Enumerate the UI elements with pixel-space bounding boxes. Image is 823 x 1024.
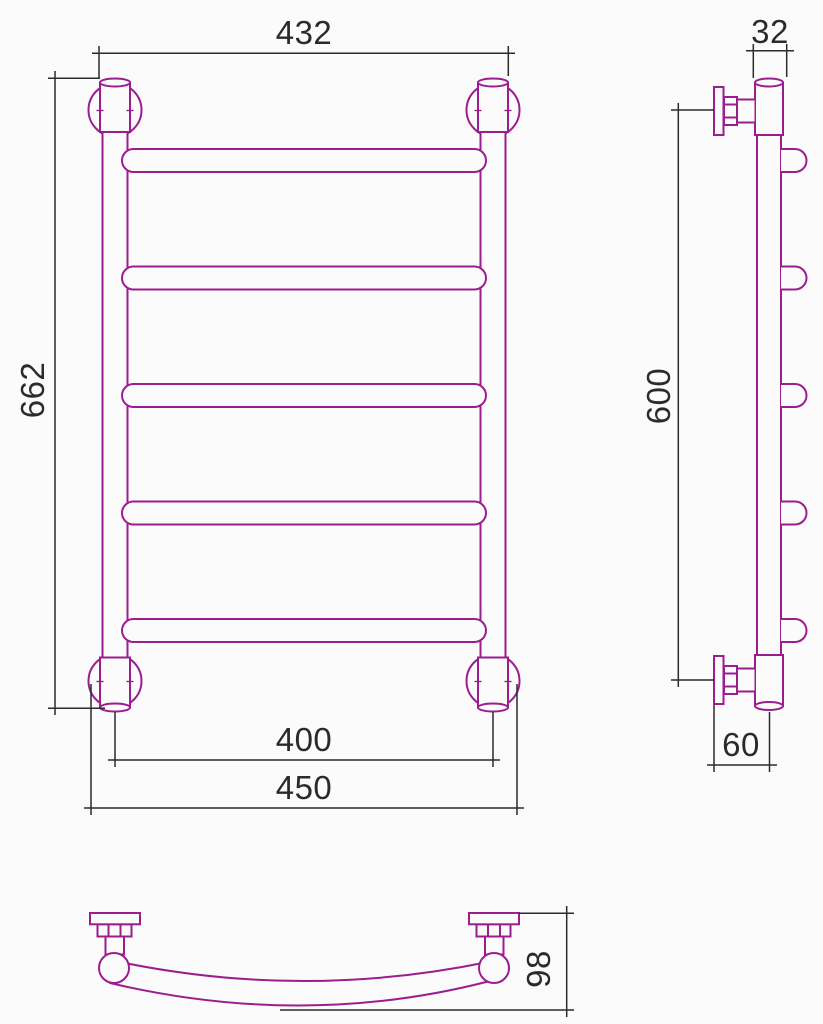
tube-bottom-cap — [478, 704, 508, 712]
rung-4 — [122, 502, 486, 525]
bracket-nut — [724, 666, 737, 694]
bracket-flange — [714, 87, 724, 135]
rung-3 — [122, 384, 486, 407]
dim-98-label: 98 — [520, 950, 557, 988]
dim-662: 662 — [14, 71, 105, 715]
tube-bottom-cap — [100, 704, 130, 712]
plan-stem-left — [106, 937, 125, 955]
tube-bottom-cap — [755, 702, 783, 710]
plan-tube-left — [99, 953, 129, 983]
rung-2 — [122, 267, 486, 290]
rung-bump-2 — [781, 267, 807, 290]
plan-stem-right — [485, 937, 504, 955]
side-bracket-bottom — [714, 656, 755, 704]
dim-32: 32 — [746, 13, 794, 78]
dim-60: 60 — [707, 705, 777, 772]
dim-432: 432 — [92, 14, 515, 79]
rung-1 — [122, 149, 486, 172]
plan-curved-rung — [110, 962, 490, 1006]
tube-top-cap — [478, 79, 508, 87]
towel-rail-drawing: 432 662 400 450 32 — [0, 0, 823, 1024]
plan-nut-right — [477, 924, 511, 936]
bracket-nut — [724, 97, 737, 125]
side-tube — [755, 79, 783, 711]
dim-450-label: 450 — [276, 769, 333, 806]
dim-32-label: 32 — [751, 13, 789, 50]
rung-bump-1 — [781, 149, 807, 172]
dim-432-label: 432 — [276, 14, 333, 51]
rung-bump-5 — [781, 619, 807, 642]
dim-400: 400 — [108, 712, 500, 767]
dim-662-label: 662 — [14, 362, 51, 419]
technical-drawing-canvas: 432 662 400 450 32 — [0, 0, 823, 1024]
front-rungs — [122, 149, 486, 642]
tube-top-cap — [755, 79, 783, 87]
side-view — [714, 79, 807, 711]
plan-flange-left — [90, 913, 140, 924]
dim-60-label: 60 — [722, 726, 760, 763]
plan-tube-right — [479, 953, 509, 983]
plan-view — [90, 913, 519, 1006]
side-bracket-top — [714, 87, 755, 135]
plan-nut-left — [98, 924, 132, 936]
dim-600: 600 — [640, 103, 714, 687]
dim-600-label: 600 — [640, 368, 677, 425]
dim-400-label: 400 — [276, 721, 333, 758]
bracket-stem — [737, 100, 755, 123]
tube-top-cap — [100, 79, 130, 87]
rung-bump-3 — [781, 384, 807, 407]
rung-5 — [122, 619, 486, 642]
bracket-stem — [737, 669, 755, 692]
side-rung-bumps — [781, 135, 807, 642]
bracket-flange — [714, 656, 724, 704]
plan-flange-right — [469, 913, 519, 924]
rung-bump-4 — [781, 502, 807, 525]
front-view — [89, 79, 520, 712]
